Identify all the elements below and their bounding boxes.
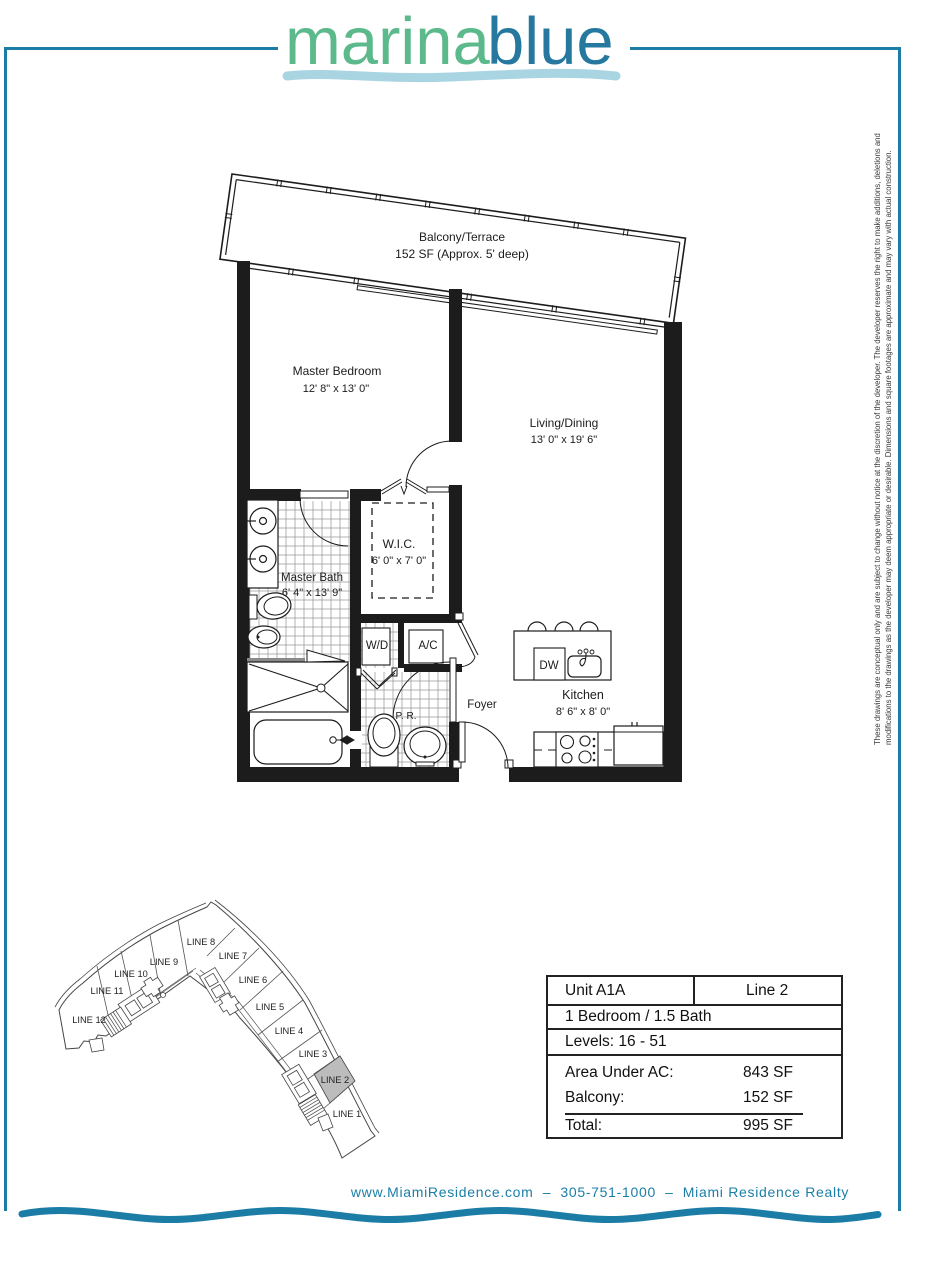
svg-text:P. R.: P. R. — [396, 711, 417, 722]
svg-text:LINE 1: LINE 1 — [333, 1109, 361, 1119]
svg-text:LINE 3: LINE 3 — [299, 1049, 327, 1059]
svg-text:Master Bath: Master Bath — [281, 572, 343, 584]
svg-text:marina: marina — [285, 5, 491, 79]
svg-text:8' 6" x 8' 0": 8' 6" x 8' 0" — [556, 706, 610, 718]
svg-text:W/D: W/D — [366, 640, 388, 652]
svg-text:6' 0" x 7' 0": 6' 0" x 7' 0" — [372, 555, 426, 567]
svg-text:Kitchen: Kitchen — [562, 688, 604, 702]
svg-text:6' 4" x 13' 9": 6' 4" x 13' 9" — [282, 587, 342, 599]
svg-text:Foyer: Foyer — [467, 699, 497, 711]
svg-text:12' 8" x 13' 0": 12' 8" x 13' 0" — [303, 383, 370, 395]
svg-text:LINE 4: LINE 4 — [275, 1026, 303, 1036]
svg-text:A/C: A/C — [418, 640, 437, 652]
svg-text:LINE 12: LINE 12 — [72, 1015, 106, 1025]
svg-text:Master Bedroom: Master Bedroom — [293, 364, 382, 378]
svg-text:LINE 5: LINE 5 — [256, 1002, 284, 1012]
svg-text:Living/Dining: Living/Dining — [530, 416, 599, 430]
svg-text:blue: blue — [487, 5, 614, 79]
svg-text:LINE 6: LINE 6 — [239, 975, 267, 985]
svg-text:LINE 10: LINE 10 — [114, 969, 148, 979]
svg-text:LINE 11: LINE 11 — [91, 986, 124, 996]
svg-text:LINE 9: LINE 9 — [150, 957, 178, 967]
svg-text:Balcony/Terrace: Balcony/Terrace — [419, 230, 505, 244]
svg-text:W.I.C.: W.I.C. — [383, 537, 416, 551]
svg-text:LINE 2: LINE 2 — [321, 1075, 349, 1085]
svg-text:152 SF (Approx. 5' deep): 152 SF (Approx. 5' deep) — [395, 247, 529, 261]
svg-text:13' 0" x 19' 6": 13' 0" x 19' 6" — [531, 434, 598, 446]
svg-text:LINE 8: LINE 8 — [187, 937, 215, 947]
svg-text:LINE 7: LINE 7 — [219, 951, 247, 961]
svg-text:DW: DW — [539, 660, 558, 672]
